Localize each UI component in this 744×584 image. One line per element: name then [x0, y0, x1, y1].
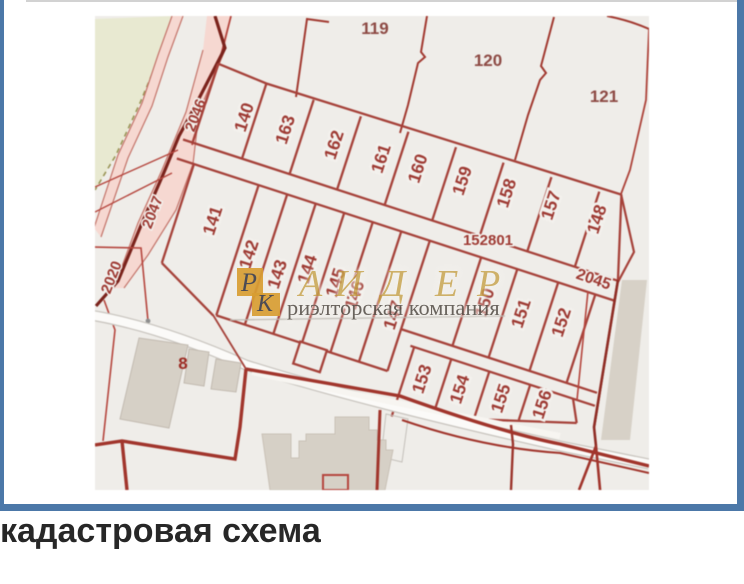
- svg-text:121: 121: [590, 87, 618, 106]
- svg-text:120: 120: [474, 51, 502, 70]
- svg-text:8: 8: [178, 354, 187, 373]
- svg-text:152801: 152801: [463, 232, 513, 249]
- svg-text:119: 119: [361, 19, 388, 38]
